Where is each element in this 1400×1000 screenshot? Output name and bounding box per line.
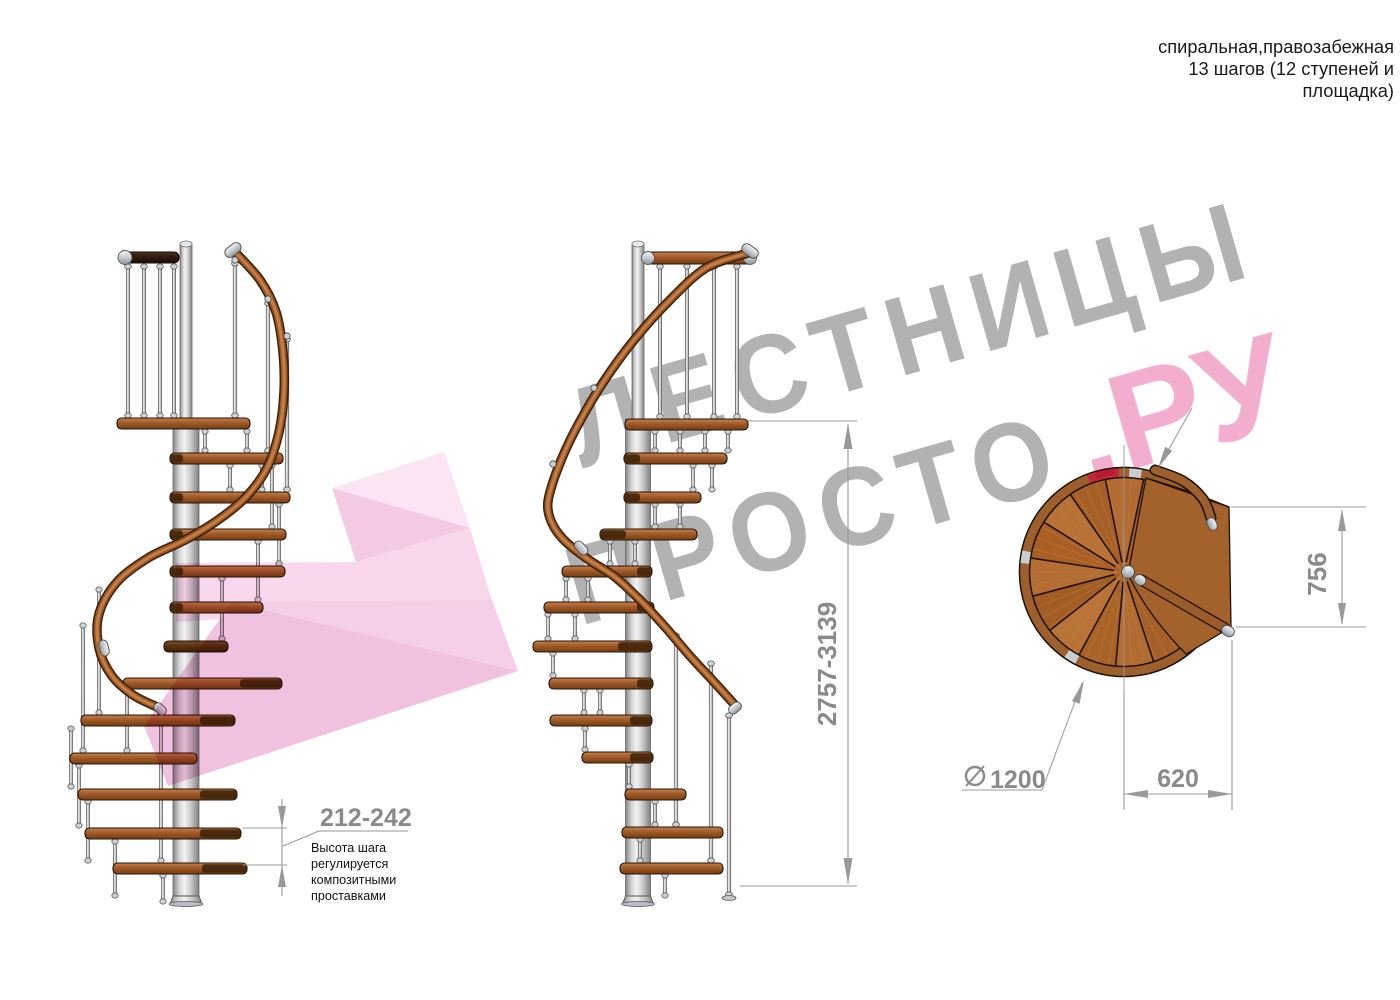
svg-text:Высота шага: Высота шага — [311, 841, 386, 855]
svg-text:проставками: проставками — [311, 889, 386, 903]
svg-text:13 шагов (12 ступеней и: 13 шагов (12 ступеней и — [1188, 58, 1394, 79]
svg-text:площадка): площадка) — [1303, 80, 1394, 101]
svg-text:756: 756 — [1302, 552, 1332, 595]
svg-text:2757-3139: 2757-3139 — [812, 602, 842, 726]
svg-text:212-242: 212-242 — [320, 804, 412, 832]
svg-text:спиральная,правозабежная: спиральная,правозабежная — [1158, 36, 1394, 57]
svg-text:620: 620 — [1157, 765, 1199, 793]
svg-text:композитными: композитными — [311, 873, 396, 887]
svg-text:регулируется: регулируется — [311, 857, 388, 871]
